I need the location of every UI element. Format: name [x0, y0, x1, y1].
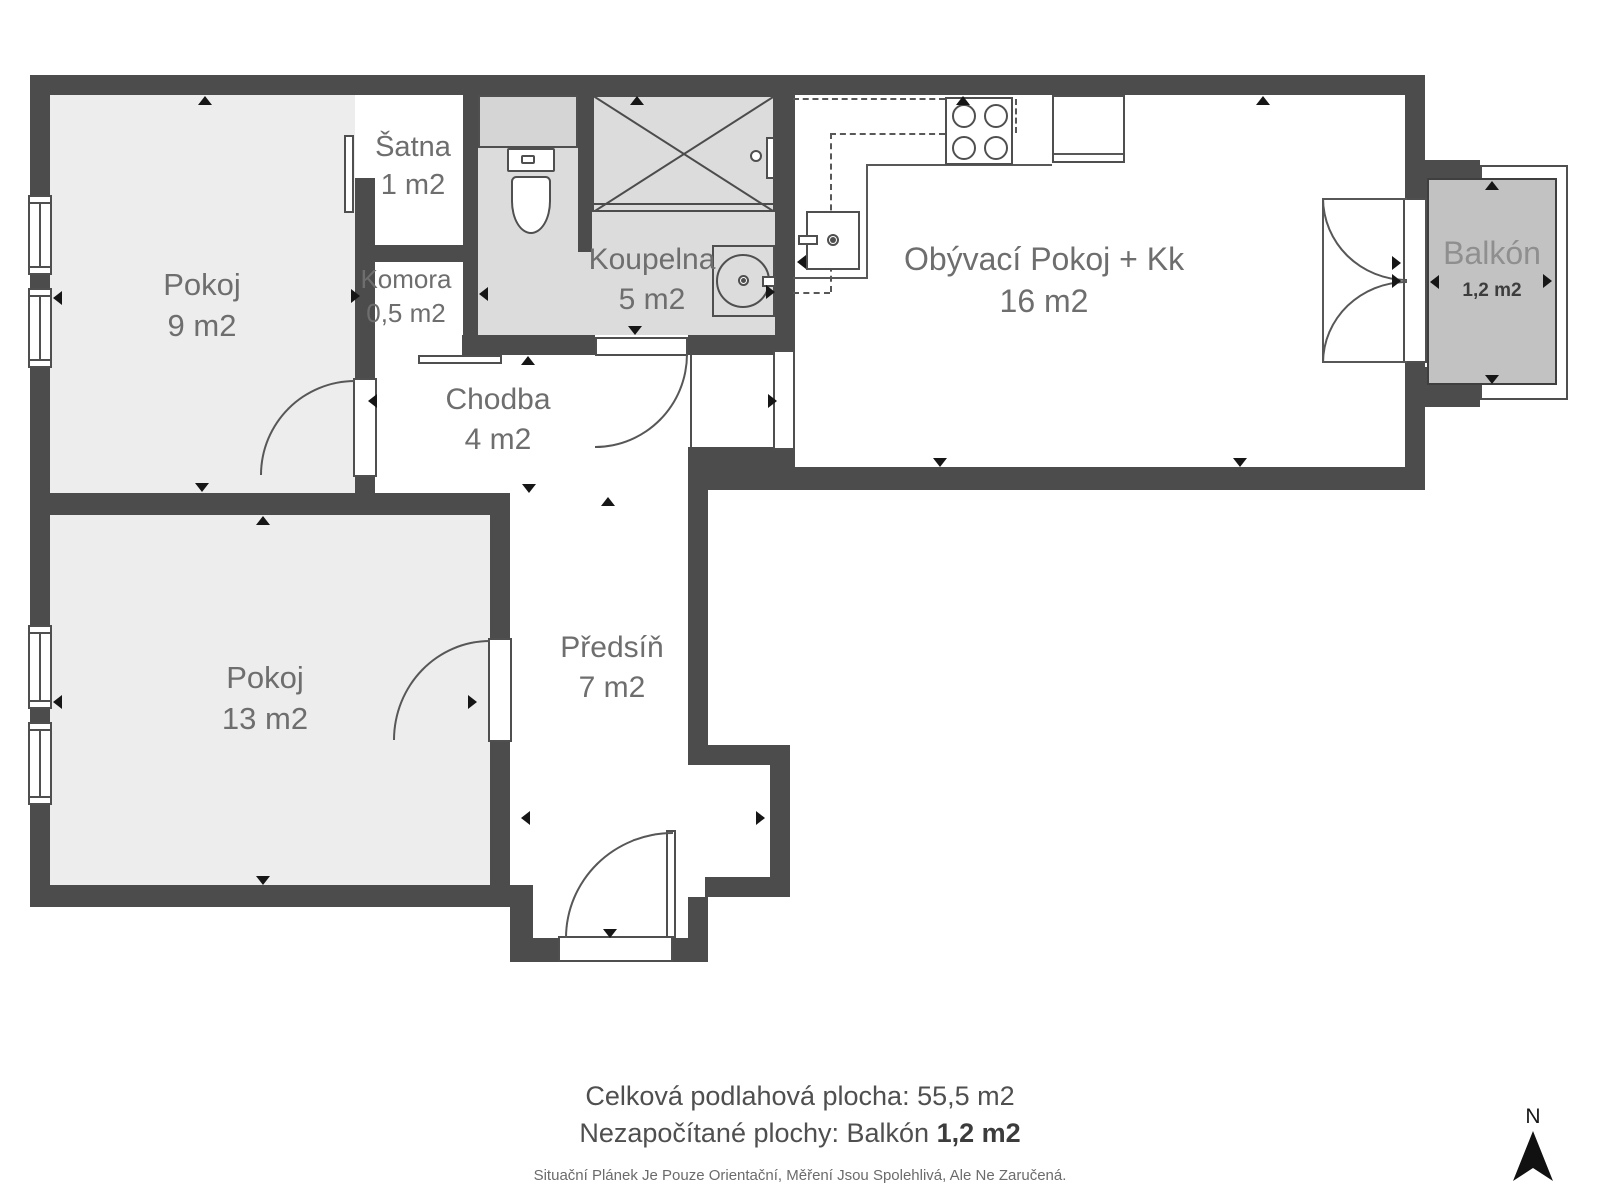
direction-tick — [601, 497, 615, 506]
shower-head — [750, 150, 762, 162]
stove-burner — [984, 104, 1008, 128]
compass-north-label: N — [1512, 1105, 1554, 1129]
direction-tick — [956, 96, 970, 105]
wall-living-right-lower — [1405, 363, 1425, 490]
kitchen-zone-dash — [793, 98, 945, 100]
room-name: Obývací Pokoj + Kk — [844, 238, 1244, 280]
passage-chodba-living — [690, 355, 775, 447]
kitchen-zone-dash — [1015, 99, 1017, 133]
window-sill — [30, 202, 50, 204]
room-name: Pokoj — [155, 658, 375, 699]
wall-predsin-corner — [510, 885, 533, 962]
wall-pokoj13-bottom — [30, 885, 510, 907]
wall-pokoj13-right-lower — [490, 740, 510, 885]
floor-plan-page: Pokoj 9 m2 Šatna 1 m2 Komora 0,5 m2 Koup… — [0, 0, 1600, 1200]
wall-bath-living — [775, 75, 795, 350]
window-sill — [30, 359, 50, 361]
wall-bath-bottom-b — [462, 335, 595, 355]
disclaimer-text: Situační Plánek Je Pouze Orientační, Měř… — [400, 1167, 1200, 1184]
room-area: 7 m2 — [502, 668, 722, 708]
window-mullion — [39, 296, 41, 360]
kitchen-sink-drain-dot — [830, 237, 836, 243]
room-label-chodba: Chodba 4 m2 — [388, 380, 608, 459]
kitchen-cabinet — [1052, 95, 1125, 163]
room-label-satna: Šatna 1 m2 — [353, 128, 473, 205]
kitchen-zone-dash — [793, 292, 830, 294]
compass-needle-icon — [1513, 1131, 1553, 1181]
direction-tick — [521, 356, 535, 365]
direction-tick — [766, 285, 775, 299]
direction-tick — [1256, 96, 1270, 105]
wall-pokoj13-right-upper — [490, 515, 510, 638]
stove-burner — [984, 136, 1008, 160]
wall-niche-bottom — [705, 877, 790, 897]
passage-edge-line — [690, 355, 692, 447]
cabinet-counter-line — [1054, 153, 1123, 155]
window-pokoj9-upper — [28, 195, 52, 275]
wall-living-right-upper — [1405, 75, 1425, 198]
direction-tick — [756, 811, 765, 825]
excluded-area-text: Nezapočítané plochy: Balkón 1,2 m2 — [400, 1115, 1200, 1152]
shower — [592, 95, 775, 212]
excluded-value: 1,2 m2 — [937, 1118, 1021, 1148]
room-name: Chodba — [388, 380, 608, 420]
window-sill — [30, 266, 50, 268]
direction-tick — [256, 876, 270, 885]
window-sill — [30, 729, 50, 731]
direction-tick — [53, 695, 62, 709]
wall-pokoj9-pokoj13 — [30, 493, 510, 515]
toilet-button — [521, 155, 535, 164]
room-area: 5 m2 — [542, 280, 762, 320]
kitchen-sink-handle — [798, 235, 818, 245]
total-area-text: Celková podlahová plocha: 55,5 m2 — [400, 1078, 1200, 1115]
direction-tick — [1392, 256, 1401, 270]
door-slider-komora — [418, 355, 502, 364]
wall-satna-komora — [355, 245, 478, 262]
direction-tick — [603, 929, 617, 938]
room-label-predsin: Předsíň 7 m2 — [502, 628, 722, 707]
wall-bath-bottom-a — [355, 335, 373, 355]
room-area: 16 m2 — [844, 280, 1244, 322]
window-sill — [30, 295, 50, 297]
door-threshold-entrance — [558, 936, 673, 962]
excluded-label: Nezapočítané plochy: Balkón — [579, 1118, 929, 1148]
shower-edge-line — [594, 203, 773, 205]
window-pokoj13-upper — [28, 625, 52, 709]
wall-pokoj9-right-lower — [355, 475, 375, 493]
direction-tick — [933, 458, 947, 467]
direction-tick — [368, 394, 377, 408]
direction-tick — [468, 695, 477, 709]
room-name: Balkón — [1427, 232, 1557, 274]
room-area: 9 m2 — [92, 306, 312, 347]
room-label-pokoj13: Pokoj 13 m2 — [155, 658, 375, 740]
direction-tick — [522, 484, 536, 493]
room-name: Pokoj — [92, 265, 312, 306]
room-name: Komora — [346, 262, 466, 296]
direction-tick — [628, 326, 642, 335]
direction-tick — [195, 483, 209, 492]
room-area: 1 m2 — [353, 166, 473, 204]
direction-tick — [1392, 274, 1401, 288]
stove-burner — [952, 104, 976, 128]
room-label-obyvaci: Obývací Pokoj + Kk 16 m2 — [844, 238, 1244, 322]
window-sill — [30, 796, 50, 798]
wall-entrance-left — [533, 938, 558, 962]
wall-niche-top — [688, 745, 790, 765]
direction-tick — [1485, 181, 1499, 190]
bathroom-counter — [478, 95, 578, 148]
room-name: Koupelna — [542, 240, 762, 280]
direction-tick — [630, 96, 644, 105]
room-label-pokoj9: Pokoj 9 m2 — [92, 265, 312, 347]
room-area: 13 m2 — [155, 699, 375, 740]
window-sill — [30, 700, 50, 702]
direction-tick — [479, 287, 488, 301]
direction-tick — [1485, 375, 1499, 384]
plan-summary: Celková podlahová plocha: 55,5 m2 Nezapo… — [400, 1078, 1200, 1184]
room-label-koupelna: Koupelna 5 m2 — [542, 240, 762, 319]
direction-tick — [521, 811, 530, 825]
wall-bath-stub — [578, 95, 592, 252]
direction-tick — [198, 96, 212, 105]
stove-burner — [952, 136, 976, 160]
direction-tick — [768, 394, 777, 408]
kitchen-zone-dash — [830, 133, 945, 135]
room-label-balkon: Balkón 1,2 m2 — [1427, 232, 1557, 303]
direction-tick — [797, 255, 806, 269]
room-area: 1,2 m2 — [1427, 278, 1557, 303]
window-pokoj9-lower — [28, 288, 52, 368]
room-area: 4 m2 — [388, 420, 608, 460]
wall-top — [30, 75, 1425, 95]
wall-living-bottom — [795, 467, 1425, 490]
wall-niche-left-lower — [688, 897, 708, 962]
window-mullion — [39, 633, 41, 701]
room-area: 0,5 m2 — [346, 296, 466, 330]
direction-tick — [1233, 458, 1247, 467]
door-threshold-pokoj9 — [353, 378, 377, 477]
window-mullion — [39, 203, 41, 267]
window-sill — [30, 632, 50, 634]
wall-living-bottom-step — [688, 447, 795, 490]
room-name: Šatna — [353, 128, 473, 166]
stove — [945, 97, 1013, 165]
window-mullion — [39, 730, 41, 797]
direction-tick — [256, 516, 270, 525]
compass: N — [1512, 1105, 1554, 1181]
shower-head-bar — [766, 137, 775, 179]
direction-tick — [53, 291, 62, 305]
window-pokoj13-lower — [28, 722, 52, 805]
room-name: Předsíň — [502, 628, 722, 668]
room-label-komora: Komora 0,5 m2 — [346, 262, 466, 331]
